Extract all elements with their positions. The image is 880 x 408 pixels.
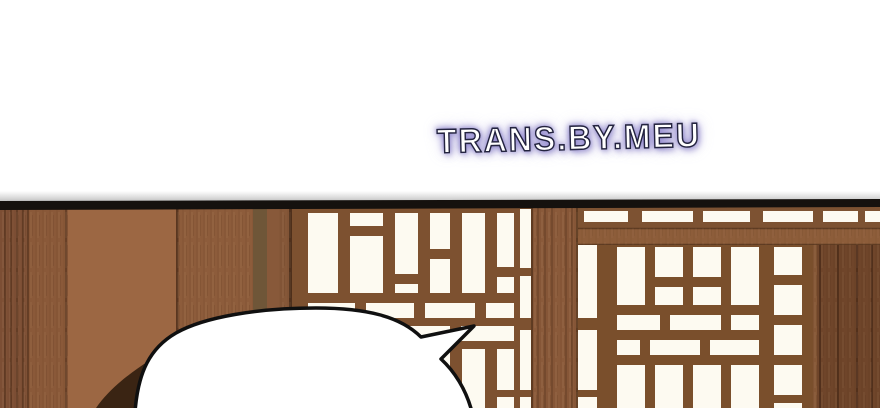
center-post xyxy=(531,206,578,408)
panel-artwork xyxy=(0,0,880,408)
transom-and-beam xyxy=(578,206,880,246)
comic-panel: TRANS.BY.MEU xyxy=(0,0,880,408)
right-wall-planks xyxy=(813,245,880,408)
right-lattice-window xyxy=(578,245,815,408)
